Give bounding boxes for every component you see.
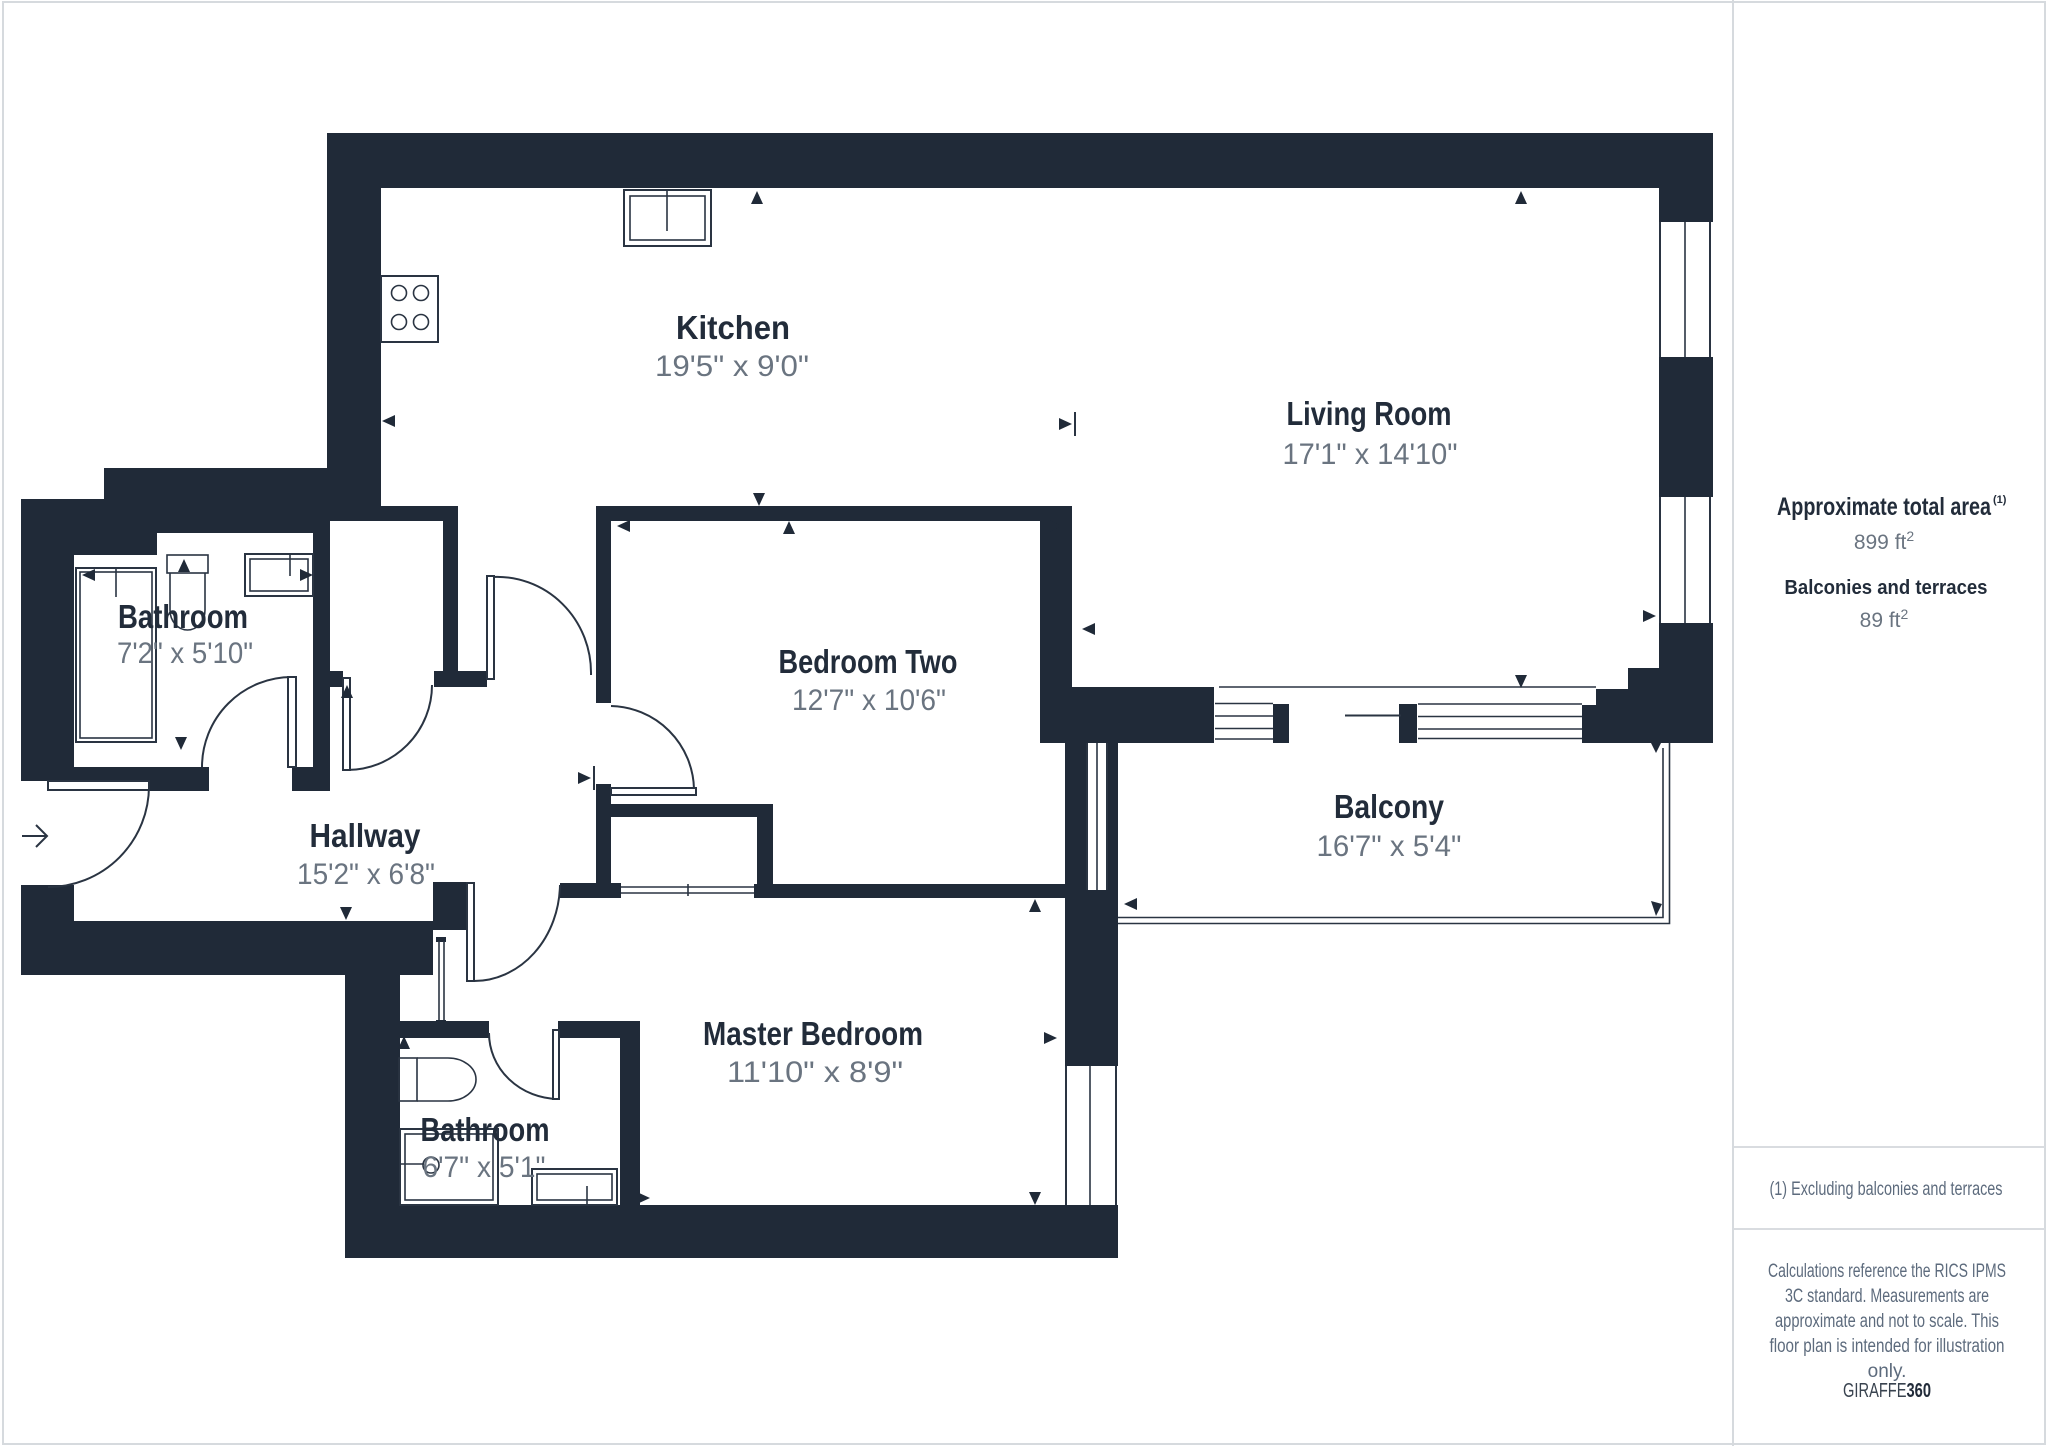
svg-text:Bathroom: Bathroom: [118, 598, 248, 635]
svg-text:Living Room: Living Room: [1287, 395, 1452, 432]
svg-text:7'2" x 5'10": 7'2" x 5'10": [117, 637, 253, 670]
svg-text:6'7" x 5'1": 6'7" x 5'1": [423, 1151, 546, 1184]
svg-text:Calculations reference the RIC: Calculations reference the RICS IPMS: [1768, 1261, 2006, 1282]
svg-text:16'7" x 5'4": 16'7" x 5'4": [1317, 830, 1462, 863]
svg-text:Bathroom: Bathroom: [421, 1111, 550, 1148]
svg-text:Master Bedroom: Master Bedroom: [703, 1015, 923, 1052]
svg-text:19'5" x 9'0": 19'5" x 9'0": [655, 350, 809, 383]
svg-text:Balconies and terraces: Balconies and terraces: [1785, 577, 1988, 599]
svg-text:11'10" x 8'9": 11'10" x 8'9": [727, 1056, 903, 1089]
svg-text:Approximate total area: Approximate total area: [1777, 493, 1992, 521]
svg-text:3C standard. Measurements are: 3C standard. Measurements are: [1785, 1286, 1989, 1307]
svg-text:Hallway: Hallway: [310, 817, 422, 854]
svg-text:floor plan is intended for ill: floor plan is intended for illustration: [1770, 1336, 2005, 1357]
svg-text:899 ft2: 899 ft2: [1854, 528, 1915, 554]
svg-text:Kitchen: Kitchen: [676, 309, 790, 346]
svg-text:approximate and not to scale.: approximate and not to scale. This: [1775, 1311, 1999, 1332]
svg-text:Balcony: Balcony: [1334, 788, 1445, 825]
svg-text:GIRAFFE360: GIRAFFE360: [1843, 1380, 1931, 1402]
svg-text:(1): (1): [1993, 494, 2007, 506]
svg-text:(1) Excluding balconies and te: (1) Excluding balconies and terraces: [1770, 1179, 2003, 1200]
svg-text:15'2" x 6'8": 15'2" x 6'8": [297, 858, 435, 891]
svg-text:17'1" x 14'10": 17'1" x 14'10": [1283, 438, 1458, 471]
svg-text:only.: only.: [1868, 1361, 1907, 1382]
svg-text:Bedroom Two: Bedroom Two: [779, 643, 958, 680]
svg-text:12'7" x 10'6": 12'7" x 10'6": [792, 684, 946, 717]
